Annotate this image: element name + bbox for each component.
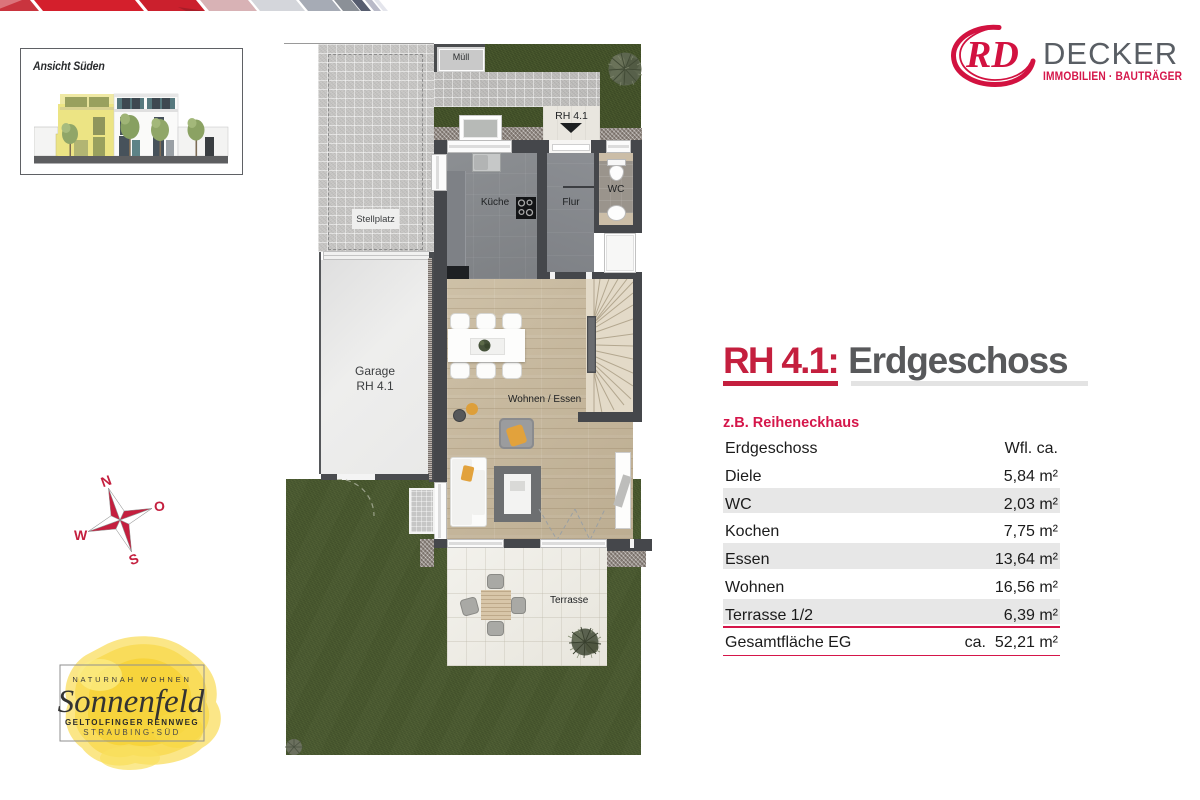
- svg-text:GELTOLFINGER RENNWEG: GELTOLFINGER RENNWEG: [65, 718, 199, 727]
- svg-text:NATURNAH WOHNEN: NATURNAH WOHNEN: [72, 675, 191, 684]
- svg-text:N: N: [99, 472, 114, 490]
- svg-text:STRAUBING-SÜD: STRAUBING-SÜD: [83, 728, 180, 737]
- svg-text:S: S: [127, 550, 141, 568]
- svg-text:W: W: [74, 527, 88, 543]
- svg-text:O: O: [154, 498, 165, 514]
- svg-text:RD: RD: [965, 34, 1019, 76]
- svg-text:Sonnenfeld: Sonnenfeld: [58, 684, 205, 720]
